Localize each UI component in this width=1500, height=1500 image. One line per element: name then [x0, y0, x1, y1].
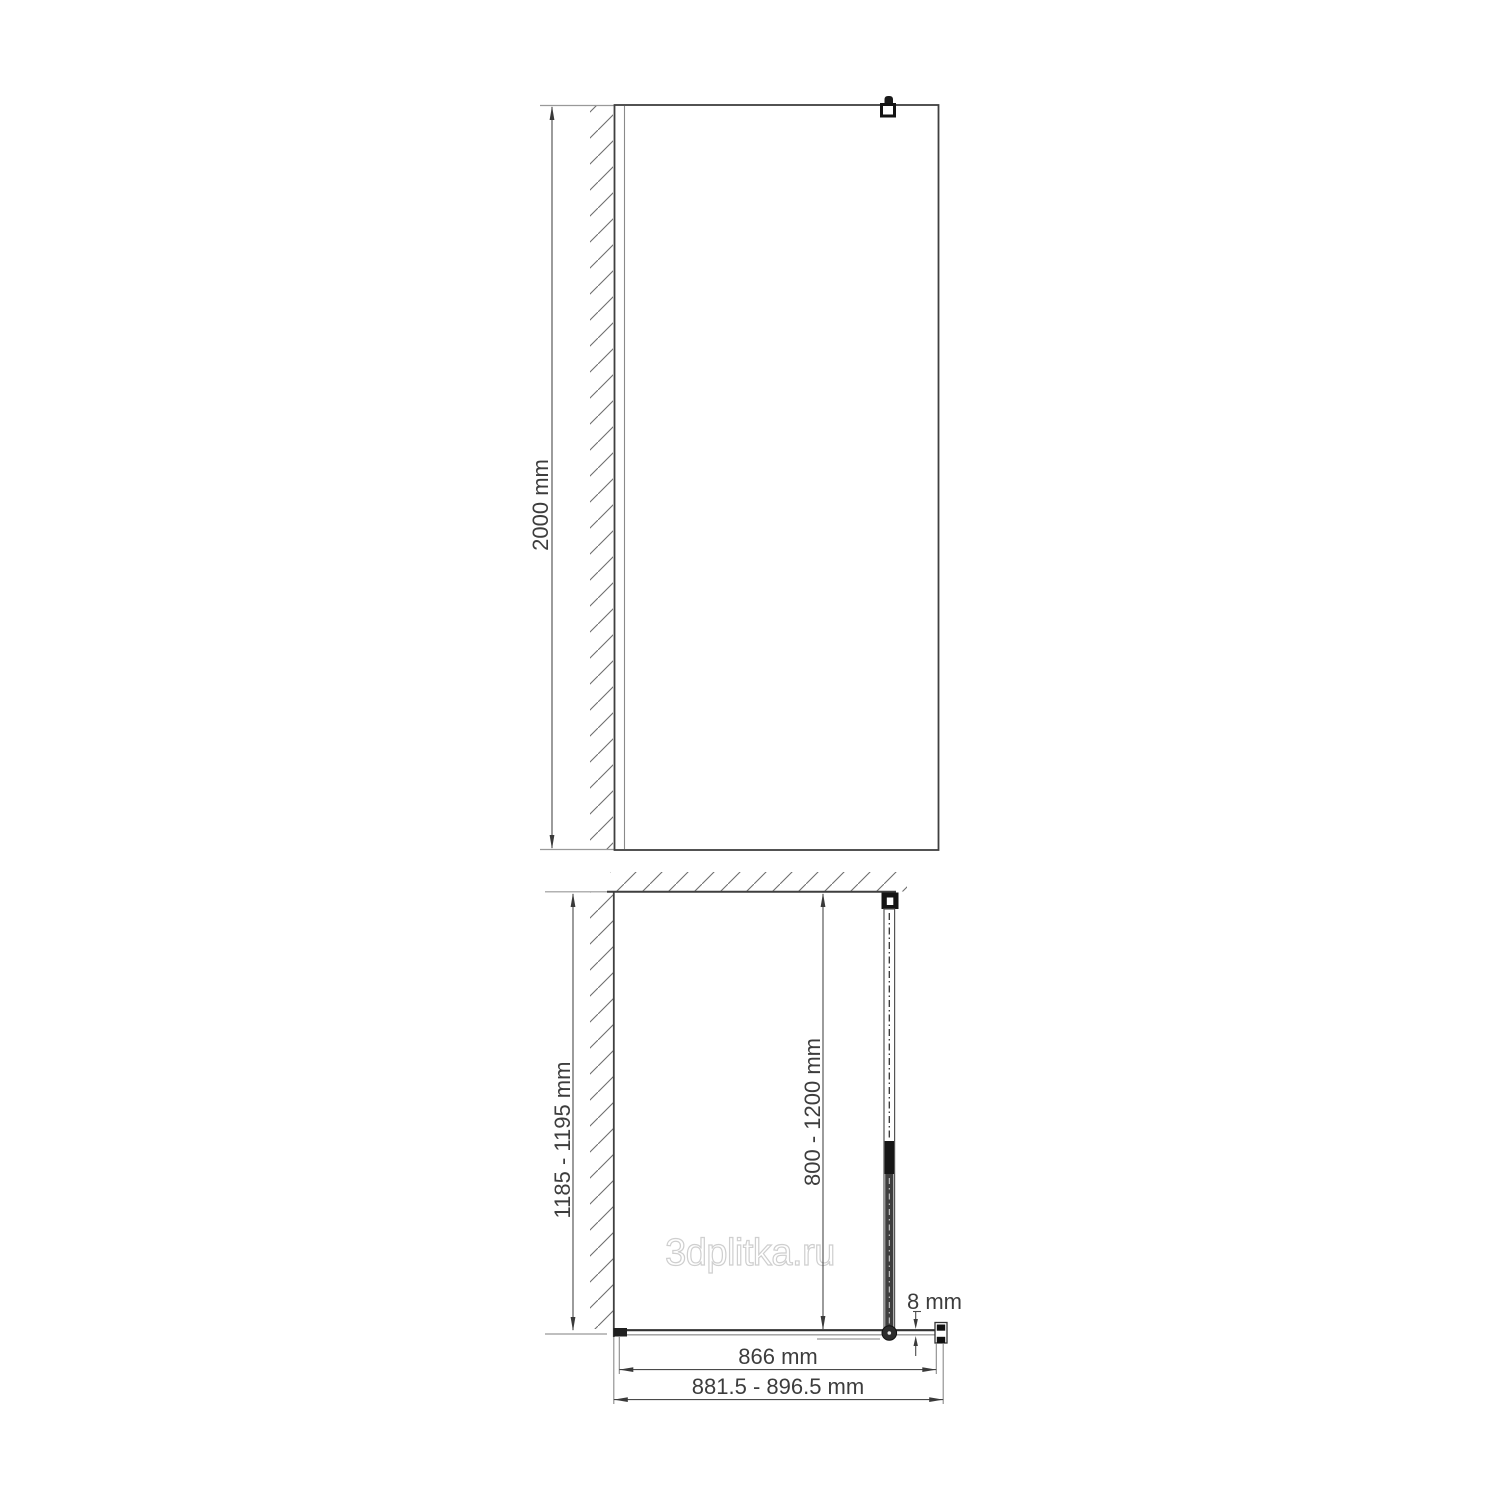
arrow-up-icon — [821, 893, 826, 907]
support-bar-adjuster — [885, 1141, 894, 1174]
end-profile-flange-bottom — [937, 1337, 945, 1343]
arrow-up-icon — [550, 106, 555, 120]
watermark: 3dplitka.ru — [665, 1232, 835, 1274]
end-profile-flange-top — [937, 1325, 945, 1331]
arrow-down-icon — [821, 1316, 826, 1330]
arrow-left-icon — [619, 1367, 633, 1372]
technical-drawing-canvas: 2000 mm 3dplitka.ru 1185 - 1195 mm — [0, 0, 1500, 1500]
support-bar-dimension-label: 800 - 1200 mm — [800, 1038, 825, 1186]
front-view: 2000 mm — [528, 96, 939, 850]
support-bar-bracket-front — [882, 105, 895, 117]
arrow-left-icon — [614, 1397, 628, 1402]
height-dimension-label: 2000 mm — [528, 459, 553, 551]
depth-dimension-label: 1185 - 1195 mm — [550, 1062, 575, 1219]
arrow-down-icon — [914, 1319, 918, 1329]
top-view: 1185 - 1195 mm 800 - 1200 mm — [545, 872, 962, 1404]
wall-hatch-back — [610, 872, 907, 892]
arrow-down-icon — [571, 1317, 576, 1331]
arrow-up-icon — [571, 893, 576, 907]
arrow-right-icon — [922, 1367, 936, 1372]
glass-panel-front — [615, 105, 939, 850]
glass-width-label: 866 mm — [738, 1344, 817, 1369]
glass-thickness-label: 8 mm — [907, 1289, 962, 1314]
arrow-right-icon — [929, 1397, 943, 1402]
arrow-up-icon — [914, 1336, 918, 1346]
support-bar-glass-connector-pin — [888, 1331, 892, 1335]
wall-hatch-side — [590, 892, 613, 1329]
arrow-down-icon — [550, 835, 555, 849]
overall-width-label: 881.5 - 896.5 mm — [692, 1374, 864, 1399]
wall-profile-clamp-plan — [614, 1328, 628, 1337]
support-bar-wall-bracket-center — [887, 898, 894, 906]
wall-hatch-front — [590, 106, 613, 849]
shower-screen-dimension-diagram: 2000 mm 3dplitka.ru 1185 - 1195 mm — [0, 0, 1500, 1500]
